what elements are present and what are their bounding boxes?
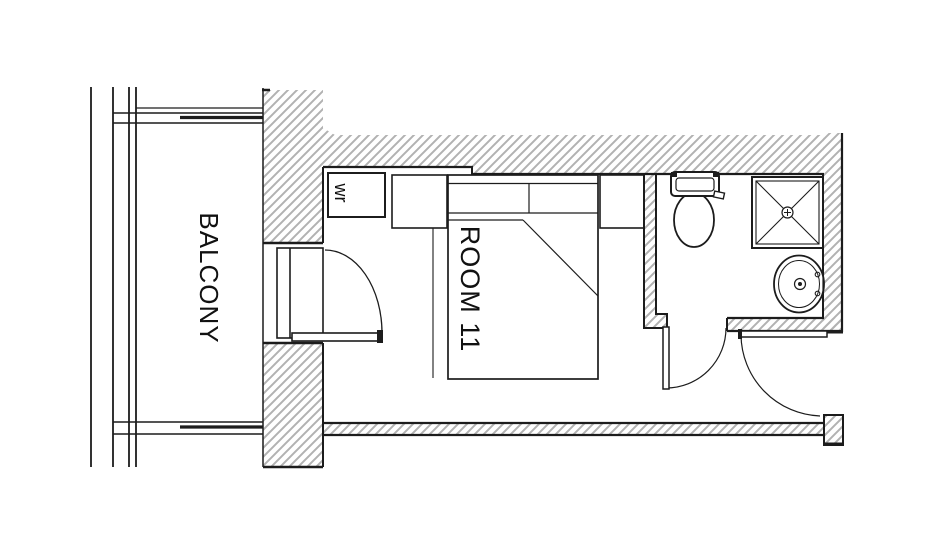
floor-plan-page: BALCONY wr ROOM 11 [0, 0, 940, 559]
balcony-door [277, 248, 383, 343]
shower [752, 177, 823, 248]
bathroom-door-leaf [663, 327, 669, 389]
balcony-railing [91, 87, 263, 467]
bathroom-door-swing-arc [666, 328, 726, 388]
bottom-wall [323, 423, 824, 435]
floor-plan-drawing: BALCONY wr ROOM 11 [0, 0, 940, 559]
balcony-door-leaf [292, 333, 382, 341]
nightstand-right [600, 175, 644, 228]
bathroom-door [663, 327, 726, 389]
right-wall [823, 133, 842, 331]
double-bed: ROOM 11 [433, 175, 598, 379]
corner-wall-block [824, 415, 843, 445]
wardrobe-label: wr [331, 183, 351, 203]
sink [774, 256, 824, 313]
balcony-wall-upper [263, 90, 323, 243]
entry-door-swing-arc [741, 335, 820, 416]
walls [262, 88, 844, 467]
bed-blanket-fold [523, 220, 598, 296]
top-wall [267, 95, 824, 174]
toilet-tank [671, 172, 719, 196]
balcony-wall-lower [263, 343, 323, 467]
nightstand-left [392, 175, 447, 228]
balcony-door-swing-arc [325, 250, 382, 333]
bathroom-bottom-wall [727, 318, 842, 331]
balcony: BALCONY [91, 87, 263, 467]
partition-wall [644, 174, 667, 328]
toilet [671, 172, 725, 247]
balcony-label: BALCONY [194, 212, 224, 343]
entry-door [738, 329, 827, 416]
room-label: ROOM 11 [455, 226, 485, 353]
furniture: wr ROOM 11 [328, 173, 644, 379]
toilet-flush-handle [713, 191, 724, 199]
toilet-bowl [674, 193, 714, 247]
wardrobe: wr [328, 173, 385, 217]
entry-door-leaf [740, 331, 827, 337]
